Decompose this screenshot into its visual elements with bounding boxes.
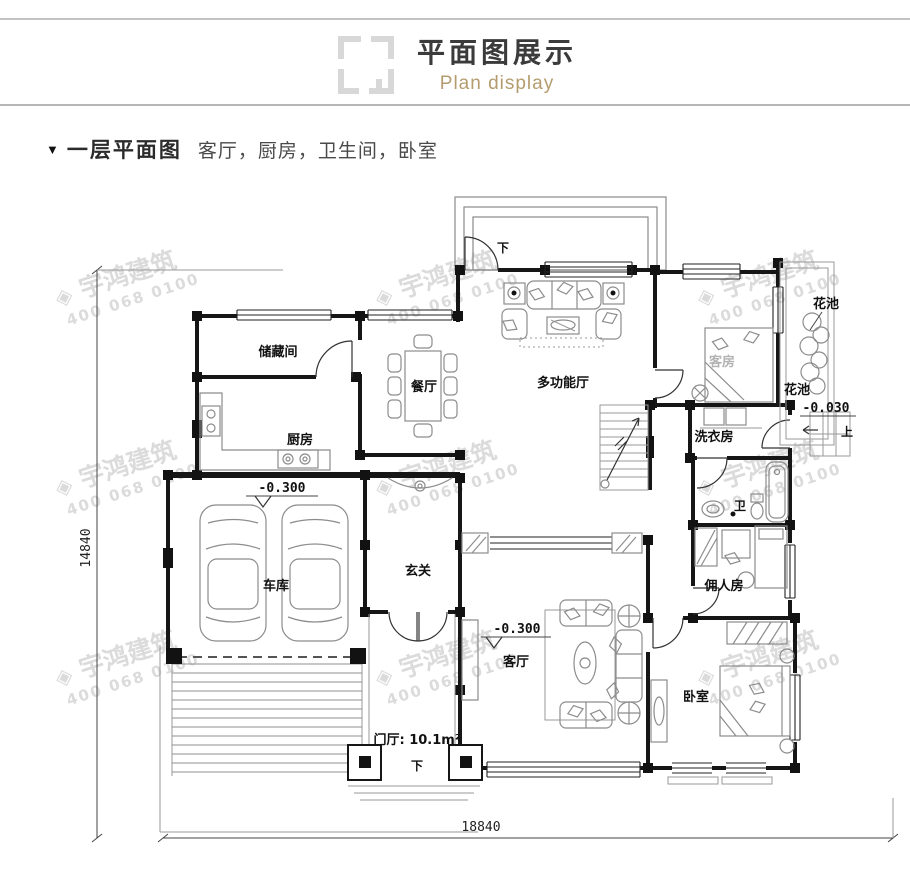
room-label-foyer: 玄关 xyxy=(405,563,431,579)
triangle-marker-icon: ▼ xyxy=(46,142,59,157)
room-label-bedroom: 卧室 xyxy=(683,689,709,705)
top-divider xyxy=(0,18,910,20)
section-title-row: ▼ 一层平面图 客厅，厨房，卫生间，卧室 xyxy=(46,134,438,164)
page-title: 平面图展示 xyxy=(417,31,577,71)
room-label-dining: 餐厅 xyxy=(410,379,437,395)
page-header: 平面图展示 Plan display xyxy=(0,24,910,102)
room-label-bath: 卫 xyxy=(734,499,746,513)
label-flower-bed: 花池 xyxy=(784,382,810,398)
floor-plan-drawing: ◈ 宇鸿建筑 400 068 0100 xyxy=(0,168,910,890)
staircase xyxy=(600,405,648,490)
room-label-guest: 客房 xyxy=(709,354,735,370)
label-up: 上 xyxy=(841,424,853,439)
dimension-bottom: 18840 xyxy=(461,820,500,835)
page-subtitle: Plan display xyxy=(440,73,554,95)
label-flower-bed-top: 花池 xyxy=(813,296,839,312)
dimension-left: 14840 xyxy=(79,528,94,567)
room-label-living: 客厅 xyxy=(503,654,529,670)
garage-cars xyxy=(200,505,348,641)
room-label-kitchen: 厨房 xyxy=(287,432,313,448)
room-label-servant: 佣人房 xyxy=(703,578,743,594)
kitchen-counter xyxy=(200,393,330,470)
room-label-laundry: 洗衣房 xyxy=(694,429,733,445)
section-description: 客厅，厨房，卫生间，卧室 xyxy=(198,136,438,163)
hall-sofa-set xyxy=(500,281,624,347)
header-divider xyxy=(0,104,910,106)
label-down-hall: 下 xyxy=(497,241,509,255)
room-label-garage: 车库 xyxy=(263,578,289,594)
label-down-porch: 下 xyxy=(411,759,423,773)
room-label-multi-hall: 多功能厅 xyxy=(537,375,589,391)
elevation-garage: -0.300 xyxy=(259,481,306,496)
section-title: 一层平面图 xyxy=(67,134,182,164)
floorplan-icon xyxy=(333,31,397,95)
elevation-entry: -0.030 xyxy=(803,401,850,416)
room-label-storage: 储藏间 xyxy=(257,344,297,360)
elevation-living: -0.300 xyxy=(494,622,541,637)
room-label-entry-hall: 门厅: 10.1m² xyxy=(373,732,460,748)
laundry-fixtures xyxy=(700,408,762,428)
